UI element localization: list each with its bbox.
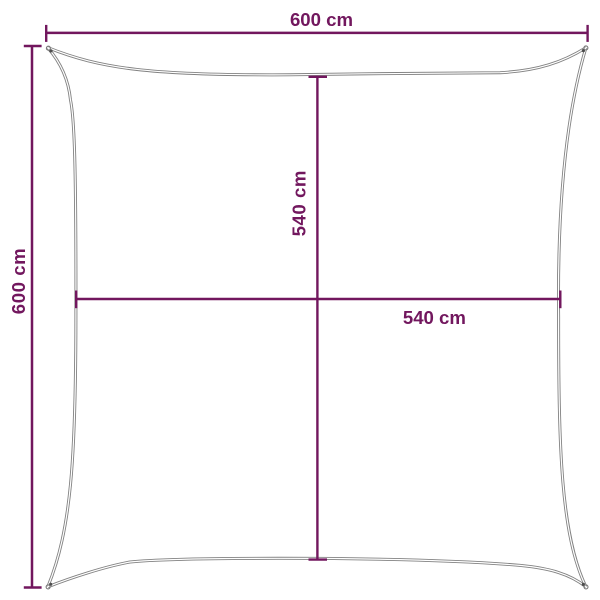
svg-text:540 cm: 540 cm — [403, 307, 466, 328]
svg-text:600 cm: 600 cm — [290, 9, 353, 30]
svg-text:600 cm: 600 cm — [8, 248, 29, 314]
svg-text:540 cm: 540 cm — [289, 170, 310, 236]
